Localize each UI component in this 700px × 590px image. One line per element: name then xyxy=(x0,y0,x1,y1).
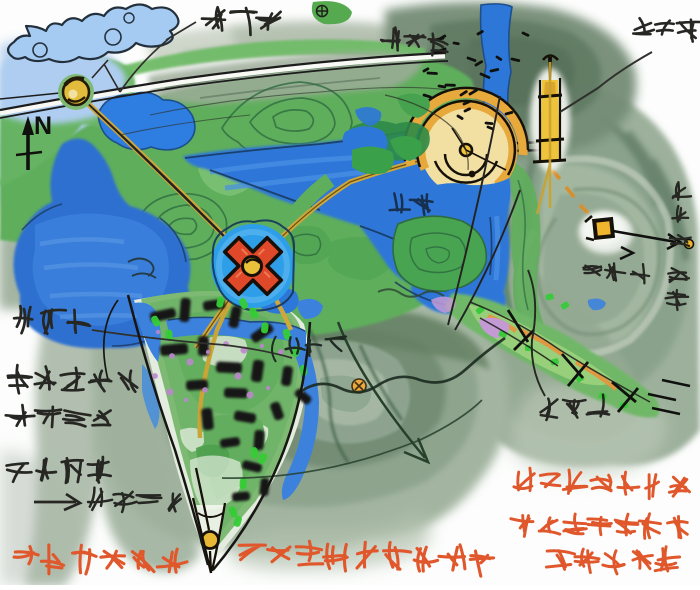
svg-text:N: N xyxy=(34,112,52,140)
